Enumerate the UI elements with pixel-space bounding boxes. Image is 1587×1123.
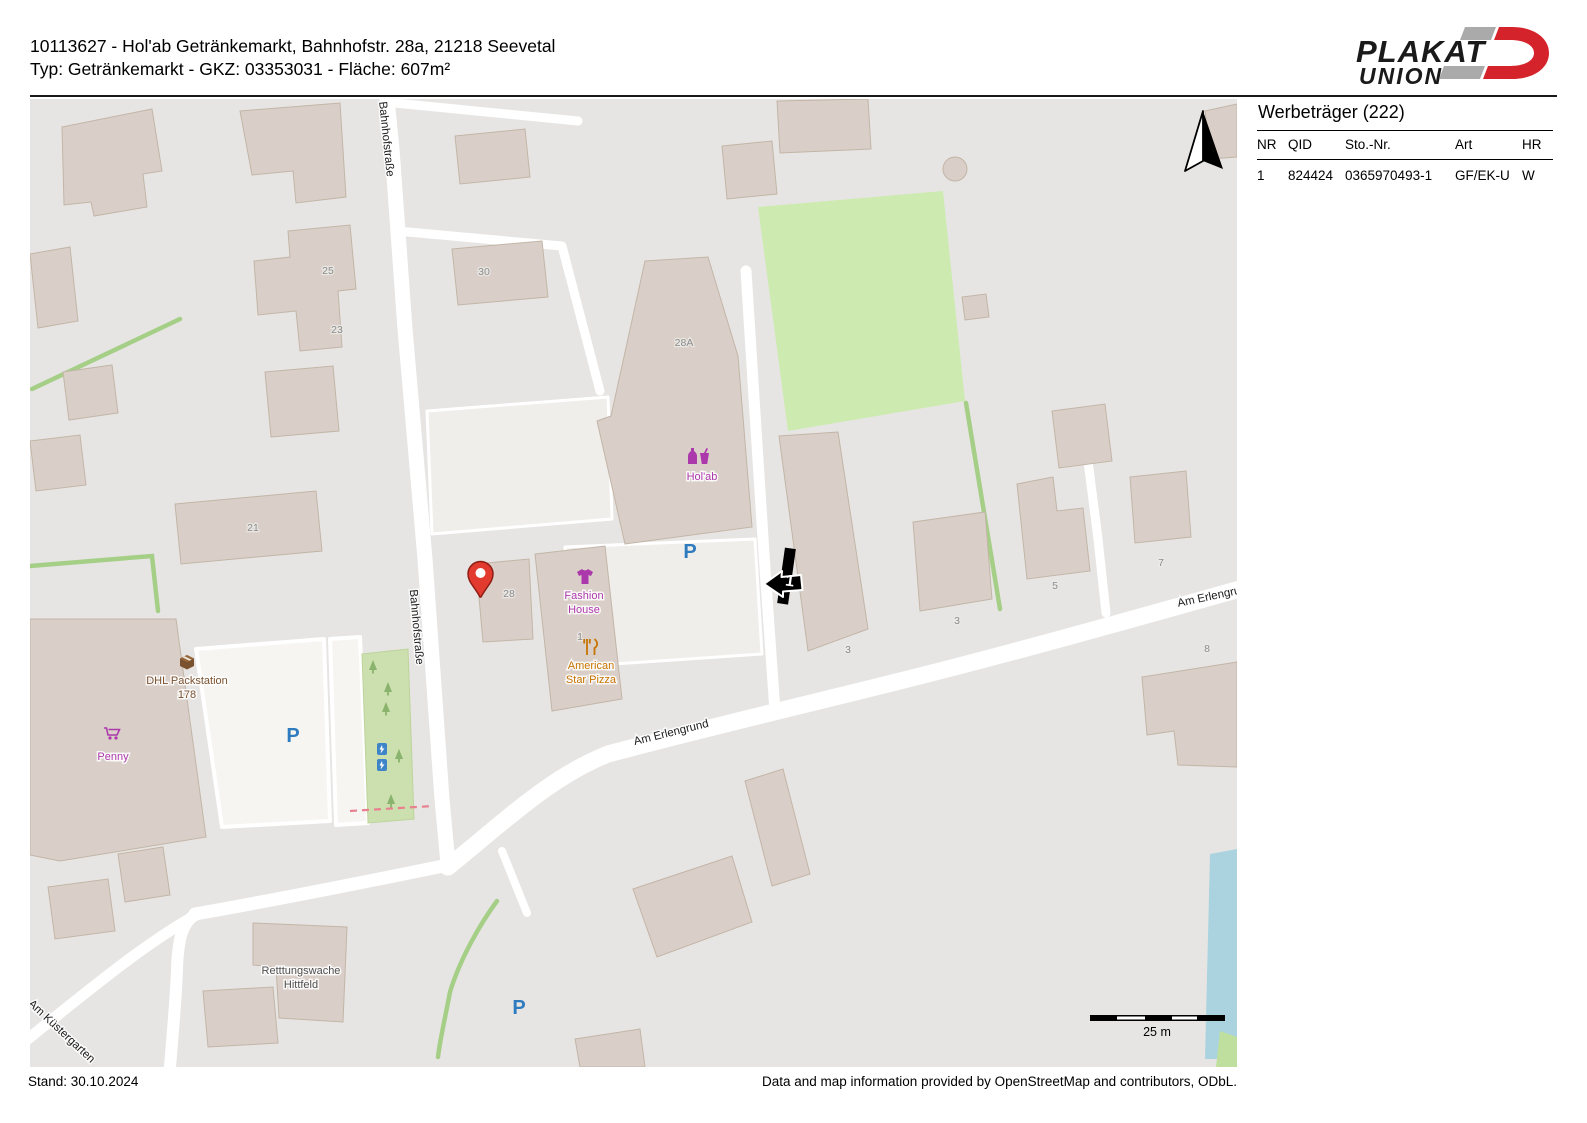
grass-field bbox=[758, 191, 965, 431]
parking-symbol: P bbox=[512, 997, 525, 1019]
svg-text:21: 21 bbox=[247, 522, 259, 534]
table-row: 1 824424 0365970493-1 GF/EK-U W bbox=[1257, 160, 1553, 184]
table-header-row: NR QID Sto.-Nr. Art HR bbox=[1257, 131, 1553, 160]
werbetraeger-panel: Werbeträger (222) NR QID Sto.-Nr. Art HR… bbox=[1248, 102, 1558, 183]
report-subtitle: Typ: Getränkemarkt - GKZ: 03353031 - Flä… bbox=[30, 59, 450, 80]
report-title: 10113627 - Hol'ab Getränkemarkt, Bahnhof… bbox=[30, 36, 555, 57]
svg-text:DHL Packstation: DHL Packstation bbox=[146, 675, 228, 687]
header-divider bbox=[30, 95, 1557, 97]
parking-symbol: P bbox=[286, 725, 299, 747]
col-hr: HR bbox=[1522, 131, 1553, 160]
svg-text:28A: 28A bbox=[675, 337, 694, 349]
svg-text:3: 3 bbox=[845, 644, 851, 656]
svg-text:Hol'ab: Hol'ab bbox=[687, 471, 718, 483]
osm-attribution: Data and map information provided by Ope… bbox=[762, 1074, 1237, 1089]
svg-text:23: 23 bbox=[331, 324, 343, 336]
building-holab bbox=[597, 257, 752, 544]
svg-text:28: 28 bbox=[503, 588, 515, 600]
col-qid: QID bbox=[1288, 131, 1345, 160]
svg-text:Retttungswache: Retttungswache bbox=[262, 965, 341, 977]
cell-qid: 824424 bbox=[1288, 160, 1345, 184]
svg-text:25 m: 25 m bbox=[1143, 1025, 1171, 1039]
col-art: Art bbox=[1455, 131, 1522, 160]
map-svg: Bahnhofstraße Bahnhofstraße Am Erlengrun… bbox=[30, 99, 1237, 1067]
col-sto-nr: Sto.-Nr. bbox=[1345, 131, 1455, 160]
svg-text:Penny: Penny bbox=[97, 751, 129, 763]
ev-charging-icon bbox=[377, 743, 387, 755]
svg-text:8: 8 bbox=[1204, 643, 1210, 655]
panel-title: Werbeträger (222) bbox=[1248, 102, 1558, 123]
svg-text:Star Pizza: Star Pizza bbox=[566, 674, 617, 686]
stand-date: Stand: 30.10.2024 bbox=[28, 1074, 138, 1089]
cell-art: GF/EK-U bbox=[1455, 160, 1522, 184]
logo-word-union: UNION bbox=[1359, 63, 1443, 89]
svg-text:5: 5 bbox=[1052, 580, 1058, 592]
green-strip bbox=[362, 649, 414, 823]
logo-svg: PLAKAT UNION bbox=[1348, 18, 1556, 90]
building-penny bbox=[30, 619, 206, 861]
ev-charging-icon bbox=[377, 759, 387, 771]
map: Bahnhofstraße Bahnhofstraße Am Erlengrun… bbox=[30, 99, 1237, 1067]
cell-hr: W bbox=[1522, 160, 1553, 184]
svg-text:1: 1 bbox=[577, 631, 583, 643]
scale-bar: 25 m bbox=[1090, 1015, 1225, 1039]
svg-text:7: 7 bbox=[1158, 557, 1164, 569]
parking-symbol: P bbox=[683, 541, 696, 563]
svg-text:3: 3 bbox=[954, 615, 960, 627]
svg-text:Hittfeld: Hittfeld bbox=[284, 979, 318, 991]
plakat-union-logo: PLAKAT UNION bbox=[1348, 18, 1556, 90]
page: { "header": { "line1": "10113627 - Hol'a… bbox=[0, 0, 1587, 1123]
svg-text:25: 25 bbox=[322, 265, 334, 277]
cell-nr: 1 bbox=[1257, 160, 1288, 184]
svg-text:178: 178 bbox=[178, 689, 196, 701]
svg-text:House: House bbox=[568, 604, 600, 616]
svg-text:Fashion: Fashion bbox=[564, 590, 603, 602]
cell-sto-nr: 0365970493-1 bbox=[1345, 160, 1455, 184]
col-nr: NR bbox=[1257, 131, 1288, 160]
werbetraeger-table: NR QID Sto.-Nr. Art HR 1 824424 03659704… bbox=[1257, 130, 1553, 183]
svg-text:30: 30 bbox=[478, 266, 490, 278]
water-area bbox=[1205, 849, 1237, 1059]
svg-text:American: American bbox=[568, 660, 614, 672]
